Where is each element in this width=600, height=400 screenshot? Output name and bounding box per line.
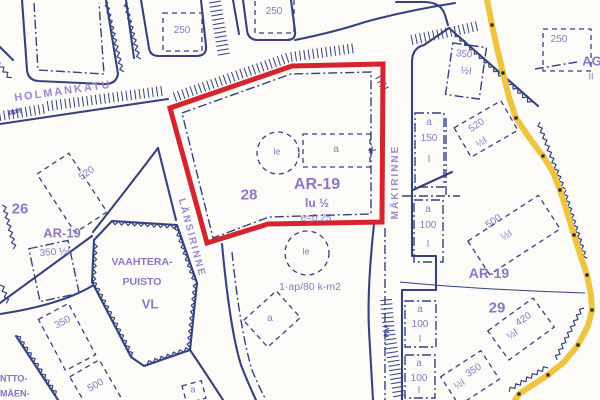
yellow-plan-boundary — [487, 0, 592, 400]
map-linework: .ln{fill:none;stroke:#35427f;stroke-widt… — [0, 0, 600, 400]
zoning-map: .ln{fill:none;stroke:#35427f;stroke-widt… — [0, 0, 600, 400]
